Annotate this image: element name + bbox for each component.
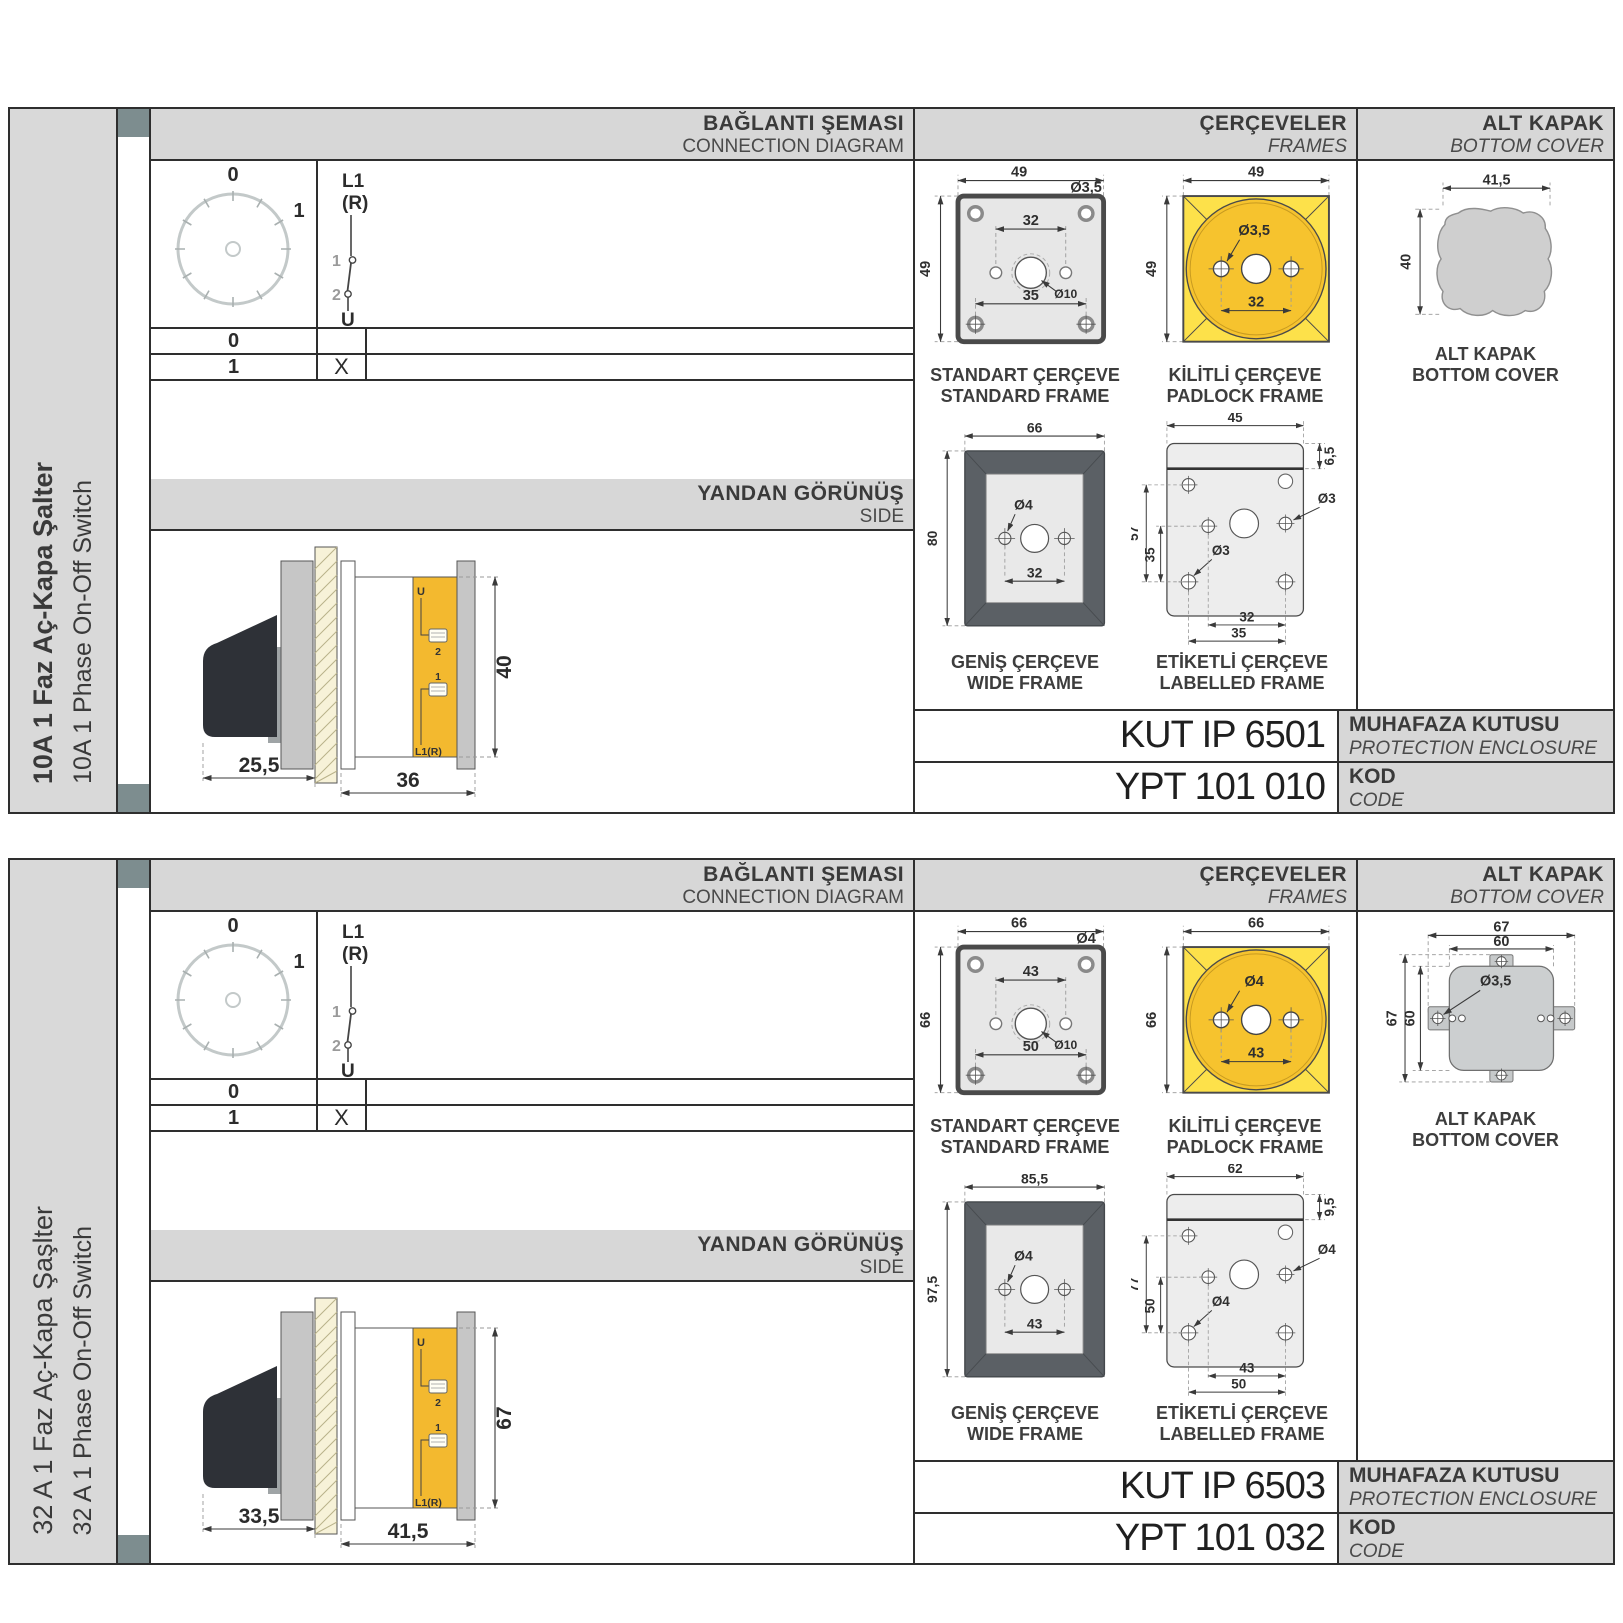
frames-header: ÇERÇEVELER FRAMES — [915, 860, 1356, 912]
side-view-header-tr: YANDAN GÖRÜNÜŞ — [151, 482, 904, 505]
code-row: YPT 101 032 KOD CODE — [915, 1512, 1613, 1564]
section-content: BAĞLANTI ŞEMASI CONNECTION DIAGRAM 0 1 — [151, 860, 1613, 1563]
enclosure-row: KUT IP 6503 MUHAFAZA KUTUSU PROTECTION E… — [915, 1462, 1613, 1512]
frames-header-tr: ÇERÇEVELER — [915, 863, 1347, 886]
caption-en: BOTTOM COVER — [1358, 1130, 1613, 1151]
body-terminal-1: 1 — [435, 671, 441, 683]
section-sidebar: 32 A 1 Faz Aç-Kapa Şaşlter 32 A 1 Phase … — [10, 860, 118, 1563]
caption-en: BOTTOM COVER — [1358, 365, 1613, 386]
dim-body-depth: 36 — [396, 769, 419, 792]
enclosure-label-tr: MUHAFAZA KUTUSU — [1349, 713, 1613, 737]
cover-header-en: BOTTOM COVER — [1358, 135, 1604, 158]
standard-frame-drawing: 66 Ø4 66 — [917, 916, 1131, 1115]
standard-frame-figure: 49 Ø3,5 49 — [917, 165, 1133, 407]
caption-tr: STANDART ÇERÇEVE — [917, 365, 1133, 386]
switch-handle — [203, 615, 277, 737]
dim-frame-height: 80 — [924, 530, 940, 546]
frames-header: ÇERÇEVELER FRAMES — [915, 109, 1356, 161]
caption-en: LABELLED FRAME — [1131, 673, 1353, 694]
index-tab-marker — [118, 1535, 149, 1563]
codes-table: KUT IP 6501 MUHAFAZA KUTUSU PROTECTION E… — [915, 709, 1613, 812]
cover-header-tr: ALT KAPAK — [1358, 863, 1604, 886]
contact-2-label: 2 — [332, 1038, 341, 1055]
labelled-frame-caption: ETİKETLİ ÇERÇEVE LABELLED FRAME — [1131, 1403, 1353, 1445]
padlock-frame-drawing: 66 66 — [1139, 916, 1349, 1115]
dial-drawing: 0 1 — [151, 912, 316, 1078]
caption-en: PADLOCK FRAME — [1139, 1137, 1351, 1158]
wide-frame-figure: 66 80 — [923, 423, 1127, 694]
contact-1-label: 1 — [332, 1004, 341, 1021]
frames-and-cover: ÇERÇEVELER FRAMES 49 Ø3,5 — [915, 109, 1613, 812]
spacer — [151, 1132, 913, 1230]
code-label: KOD CODE — [1337, 763, 1613, 813]
wide-frame-drawing: 85,5 97,5 — [923, 1174, 1123, 1402]
dim-cover-hole: Ø3,5 — [1479, 974, 1510, 990]
switch-symbol-cell: L1 (R) 1 2 U — [318, 161, 913, 327]
body-terminal-2: 2 — [435, 646, 441, 658]
side-view-figure: U 2 1 L1(R) 25,5 — [151, 531, 913, 812]
index-tab-marker — [118, 109, 149, 137]
dim-frame-height: 49 — [918, 261, 934, 277]
switch-symbol-cell: L1 (R) 1 2 U — [318, 912, 913, 1078]
dial-drawing: 0 1 — [151, 161, 316, 327]
connection-header: BAĞLANTI ŞEMASI CONNECTION DIAGRAM — [151, 109, 913, 161]
standard-frame-drawing: 49 Ø3,5 49 — [917, 165, 1131, 364]
dial-figure: 0 1 — [151, 161, 318, 327]
position-0-mark — [318, 1080, 367, 1104]
cover-header-tr: ALT KAPAK — [1358, 112, 1604, 135]
caption-tr: KİLİTLİ ÇERÇEVE — [1139, 365, 1351, 386]
padlock-frame-figure: 66 66 — [1139, 916, 1351, 1158]
dim-height-outer: 57 — [1131, 526, 1141, 541]
terminal-label-u: U — [341, 1061, 355, 1078]
cover-figure: 67 60 67 60 — [1358, 912, 1613, 1460]
labelled-frame-figure: 45 6,5 — [1131, 413, 1353, 694]
dim-bottom-2: 35 — [1231, 626, 1246, 641]
terminal-label-r: (R) — [342, 944, 368, 965]
side-view-drawing: U 2 1 L1(R) 33,5 — [165, 1282, 595, 1555]
caption-tr: GENİŞ ÇERÇEVE — [923, 1403, 1127, 1424]
product-title-en: 10A 1 Phase On-Off Switch — [69, 480, 98, 784]
standard-frame-figure: 66 Ø4 66 — [917, 916, 1133, 1158]
body-terminal-2: 2 — [435, 1397, 441, 1409]
connection-header: BAĞLANTI ŞEMASI CONNECTION DIAGRAM — [151, 860, 913, 912]
cover-caption: ALT KAPAK BOTTOM COVER — [1358, 344, 1613, 386]
switch-symbol: L1 (R) 1 2 U — [318, 912, 458, 1078]
caption-tr: KİLİTLİ ÇERÇEVE — [1139, 1116, 1351, 1137]
body-label-u: U — [417, 1337, 425, 1349]
connection-header-en: CONNECTION DIAGRAM — [151, 135, 904, 158]
section-sidebar: 10A 1 Faz Aç-Kapa Şalter 10A 1 Phase On-… — [10, 109, 118, 812]
dim-frame-width: 66 — [1011, 916, 1027, 932]
wide-frame-drawing: 66 80 — [923, 423, 1123, 651]
code-label-tr: KOD — [1349, 1516, 1613, 1540]
frames-column: ÇERÇEVELER FRAMES 66 Ø4 — [915, 860, 1358, 1460]
connection-diagram-row: 0 1 L1 (R) 1 2 — [151, 161, 913, 329]
frames-header-tr: ÇERÇEVELER — [915, 112, 1347, 135]
switch-symbol: L1 (R) 1 2 U — [318, 161, 458, 327]
dim-frame-width: 62 — [1228, 1164, 1243, 1176]
caption-en: LABELLED FRAME — [1131, 1424, 1353, 1445]
catalog-page: 10A 1 Faz Aç-Kapa Şalter 10A 1 Phase On-… — [0, 0, 1623, 1623]
spacer — [151, 381, 913, 479]
wide-frame-caption: GENİŞ ÇERÇEVE WIDE FRAME — [923, 652, 1127, 694]
contact-1-label: 1 — [332, 253, 341, 270]
bottom-cover-column: ALT KAPAK BOTTOM COVER 67 60 — [1358, 860, 1613, 1460]
dim-hole-spacing: 43 — [1027, 1315, 1043, 1331]
frames-header-en: FRAMES — [915, 886, 1347, 909]
position-table-row: 0 — [151, 1080, 913, 1106]
dim-hole-dia-2: Ø3 — [1212, 543, 1230, 558]
dial-position-0: 0 — [227, 164, 238, 186]
dim-height: 67 — [493, 1406, 516, 1429]
cover-header: ALT KAPAK BOTTOM COVER — [1358, 109, 1613, 161]
body-label-l1r: L1(R) — [415, 1497, 442, 1509]
dim-hole-dia-2: Ø4 — [1212, 1294, 1230, 1309]
dim-hole-dia: Ø4 — [1244, 974, 1264, 990]
side-view-header-tr: YANDAN GÖRÜNÜŞ — [151, 1233, 904, 1256]
frames-grid: 49 Ø3,5 49 — [915, 161, 1356, 709]
dim-height-inner: 35 — [1142, 547, 1157, 562]
index-tab-marker — [118, 860, 149, 888]
caption-tr: ETİKETLİ ÇERÇEVE — [1131, 1403, 1353, 1424]
side-view-header: YANDAN GÖRÜNÜŞ SIDE — [151, 1230, 913, 1282]
dim-handle-depth: 25,5 — [239, 754, 280, 777]
terminal-label-l1: L1 — [342, 922, 365, 943]
side-view-header: YANDAN GÖRÜNÜŞ SIDE — [151, 479, 913, 531]
labelled-frame-drawing: 45 6,5 — [1131, 413, 1351, 651]
dim-cover-height: 40 — [1398, 254, 1414, 270]
dim-strip-height: 6,5 — [1322, 446, 1337, 465]
enclosure-row: KUT IP 6501 MUHAFAZA KUTUSU PROTECTION E… — [915, 711, 1613, 761]
dim-hole-spacing: 43 — [1248, 1046, 1264, 1062]
caption-tr: ETİKETLİ ÇERÇEVE — [1131, 652, 1353, 673]
dim-center-hole: Ø10 — [1054, 1038, 1077, 1052]
dim-bottom-spacing: 35 — [1023, 288, 1039, 304]
product-code: YPT 101 032 — [915, 1514, 1337, 1564]
code-label-en: CODE — [1349, 789, 1613, 813]
codes-table: KUT IP 6503 MUHAFAZA KUTUSU PROTECTION E… — [915, 1460, 1613, 1563]
side-view-header-en: SIDE — [151, 1256, 904, 1279]
position-1-cell: 1 — [151, 1106, 318, 1130]
dim-cover-width: 41,5 — [1482, 172, 1510, 188]
dim-frame-height: 49 — [1144, 261, 1160, 277]
dim-height-inner: 50 — [1142, 1298, 1157, 1313]
position-1-mark: X — [318, 1106, 367, 1130]
product-title-tr: 10A 1 Faz Aç-Kapa Şalter — [28, 462, 59, 784]
terminal-label-l1: L1 — [342, 171, 365, 192]
connection-header-tr: BAĞLANTI ŞEMASI — [151, 863, 904, 886]
enclosure-label: MUHAFAZA KUTUSU PROTECTION ENCLOSURE — [1337, 1462, 1613, 1512]
cover-header-en: BOTTOM COVER — [1358, 886, 1604, 909]
section-content: BAĞLANTI ŞEMASI CONNECTION DIAGRAM 0 1 — [151, 109, 1613, 812]
product-title-en: 32 A 1 Phase On-Off Switch — [69, 1226, 98, 1535]
enclosure-code: KUT IP 6501 — [915, 711, 1337, 761]
dim-hole-dia: Ø4 — [1014, 1248, 1033, 1264]
terminal-label-r: (R) — [342, 193, 368, 214]
dim-hole-spacing: 32 — [1023, 213, 1039, 229]
dim-hole-dia: Ø4 — [1318, 1242, 1336, 1257]
dim-frame-height: 66 — [1144, 1012, 1160, 1028]
body-terminal-1: 1 — [435, 1422, 441, 1434]
enclosure-label-en: PROTECTION ENCLOSURE — [1349, 1488, 1613, 1512]
index-tab-strip — [118, 860, 151, 1563]
switch-body — [413, 1328, 457, 1508]
connection-column: BAĞLANTI ŞEMASI CONNECTION DIAGRAM 0 1 — [151, 109, 915, 812]
dim-body-depth: 41,5 — [388, 1520, 429, 1543]
caption-en: PADLOCK FRAME — [1139, 386, 1351, 407]
dim-strip-height: 9,5 — [1322, 1197, 1337, 1216]
caption-tr: ALT KAPAK — [1358, 344, 1613, 365]
dim-bottom-2: 50 — [1231, 1377, 1246, 1392]
dim-hole-spacing: 32 — [1027, 564, 1043, 580]
position-1-cell: 1 — [151, 355, 318, 379]
dial-position-1: 1 — [293, 200, 304, 222]
position-1-mark: X — [318, 355, 367, 379]
dim-frame-width: 66 — [1027, 423, 1043, 435]
index-tab-strip — [118, 109, 151, 812]
cover-caption: ALT KAPAK BOTTOM COVER — [1358, 1109, 1613, 1151]
standard-frame-caption: STANDART ÇERÇEVE STANDARD FRAME — [917, 365, 1133, 407]
dial-figure: 0 1 — [151, 912, 318, 1078]
bottom-cover-column: ALT KAPAK BOTTOM COVER 41,5 40 — [1358, 109, 1613, 709]
dial-position-0: 0 — [227, 915, 238, 937]
cover-header: ALT KAPAK BOTTOM COVER — [1358, 860, 1613, 912]
dim-hole-spacing: 43 — [1023, 964, 1039, 980]
code-label-tr: KOD — [1349, 765, 1613, 789]
wide-frame-caption: GENİŞ ÇERÇEVE WIDE FRAME — [923, 1403, 1127, 1445]
dim-frame-width: 66 — [1248, 916, 1264, 932]
terminal-label-u: U — [341, 310, 355, 327]
body-label-l1r: L1(R) — [415, 746, 442, 758]
frames-and-cover: ÇERÇEVELER FRAMES 66 Ø4 — [915, 860, 1613, 1563]
connection-header-en: CONNECTION DIAGRAM — [151, 886, 904, 909]
frames-grid: 66 Ø4 66 — [915, 912, 1356, 1460]
index-tab-marker — [118, 784, 149, 812]
dim-center-hole: Ø10 — [1054, 287, 1077, 301]
dim-cover-height-inner: 60 — [1402, 1010, 1418, 1026]
position-table-row: 1 X — [151, 355, 913, 381]
labelled-frame-figure: 62 9,5 — [1131, 1164, 1353, 1445]
dim-height-outer: 77 — [1131, 1277, 1141, 1292]
connection-column: BAĞLANTI ŞEMASI CONNECTION DIAGRAM 0 1 — [151, 860, 915, 1563]
dim-frame-height: 97,5 — [924, 1276, 940, 1303]
caption-en: WIDE FRAME — [923, 673, 1127, 694]
cover-drawing: 41,5 40 — [1371, 171, 1601, 343]
body-label-u: U — [417, 586, 425, 598]
enclosure-label-tr: MUHAFAZA KUTUSU — [1349, 1464, 1613, 1488]
cover-drawing: 67 60 67 60 — [1366, 920, 1606, 1108]
caption-en: WIDE FRAME — [923, 1424, 1127, 1445]
switch-body — [413, 577, 457, 757]
switch-handle — [203, 1366, 277, 1488]
dim-frame-width: 49 — [1248, 165, 1264, 181]
caption-tr: STANDART ÇERÇEVE — [917, 1116, 1133, 1137]
standard-frame-caption: STANDART ÇERÇEVE STANDARD FRAME — [917, 1116, 1133, 1158]
enclosure-label-en: PROTECTION ENCLOSURE — [1349, 737, 1613, 761]
caption-tr: GENİŞ ÇERÇEVE — [923, 652, 1127, 673]
contact-2-label: 2 — [332, 287, 341, 304]
connection-diagram-row: 0 1 L1 (R) 1 2 — [151, 912, 913, 1080]
product-code: YPT 101 010 — [915, 763, 1337, 813]
caption-en: STANDARD FRAME — [917, 386, 1133, 407]
position-table-row: 1 X — [151, 1106, 913, 1132]
dim-hole-dia: Ø3 — [1318, 491, 1336, 506]
dim-height: 40 — [493, 655, 516, 678]
position-0-cell: 0 — [151, 1080, 318, 1104]
wide-frame-figure: 85,5 97,5 — [923, 1174, 1127, 1445]
frames-column: ÇERÇEVELER FRAMES 49 Ø3,5 — [915, 109, 1358, 709]
dim-frame-height: 66 — [918, 1012, 934, 1028]
product-title-tr: 32 A 1 Faz Aç-Kapa Şaşlter — [28, 1206, 59, 1535]
caption-tr: ALT KAPAK — [1358, 1109, 1613, 1130]
dim-frame-width: 45 — [1228, 413, 1243, 425]
labelled-frame-drawing: 62 9,5 — [1131, 1164, 1351, 1402]
padlock-frame-figure: 49 49 — [1139, 165, 1351, 407]
connection-header-tr: BAĞLANTI ŞEMASI — [151, 112, 904, 135]
cover-figure: 41,5 40 ALT KAPAK BOTTOM COVER — [1358, 161, 1613, 709]
dial-position-1: 1 — [293, 951, 304, 973]
caption-en: STANDARD FRAME — [917, 1137, 1133, 1158]
dim-frame-width: 49 — [1011, 165, 1027, 181]
labelled-frame-caption: ETİKETLİ ÇERÇEVE LABELLED FRAME — [1131, 652, 1353, 694]
dim-hole-dia: Ø3,5 — [1238, 223, 1270, 239]
dim-bottom-spacing: 50 — [1023, 1039, 1039, 1055]
dim-handle-depth: 33,5 — [239, 1505, 280, 1528]
code-row: YPT 101 010 KOD CODE — [915, 761, 1613, 813]
position-0-cell: 0 — [151, 329, 318, 353]
padlock-frame-caption: KİLİTLİ ÇERÇEVE PADLOCK FRAME — [1139, 1116, 1351, 1158]
code-label: KOD CODE — [1337, 1514, 1613, 1564]
dim-bottom-1: 32 — [1239, 609, 1254, 624]
frames-header-en: FRAMES — [915, 135, 1347, 158]
cover-shape — [1437, 208, 1551, 316]
position-0-mark — [318, 329, 367, 353]
padlock-frame-caption: KİLİTLİ ÇERÇEVE PADLOCK FRAME — [1139, 365, 1351, 407]
product-section-32a: 32 A 1 Faz Aç-Kapa Şaşlter 32 A 1 Phase … — [8, 858, 1615, 1565]
side-view-drawing: U 2 1 L1(R) 25,5 — [165, 531, 595, 804]
dim-cover-width-inner: 60 — [1493, 934, 1509, 950]
padlock-frame-drawing: 49 49 — [1139, 165, 1349, 364]
side-view-figure: U 2 1 L1(R) 33,5 — [151, 1282, 913, 1563]
code-label-en: CODE — [1349, 1540, 1613, 1564]
dim-bottom-1: 43 — [1239, 1360, 1254, 1375]
dim-frame-width: 85,5 — [1021, 1174, 1048, 1186]
enclosure-label: MUHAFAZA KUTUSU PROTECTION ENCLOSURE — [1337, 711, 1613, 761]
product-section-10a: 10A 1 Faz Aç-Kapa Şalter 10A 1 Phase On-… — [8, 107, 1615, 814]
dim-hole-spacing: 32 — [1248, 295, 1264, 311]
position-table-row: 0 — [151, 329, 913, 355]
dim-cover-height-outer: 67 — [1384, 1010, 1400, 1026]
side-view-header-en: SIDE — [151, 505, 904, 528]
enclosure-code: KUT IP 6503 — [915, 1462, 1337, 1512]
dim-hole-dia: Ø4 — [1014, 497, 1033, 513]
